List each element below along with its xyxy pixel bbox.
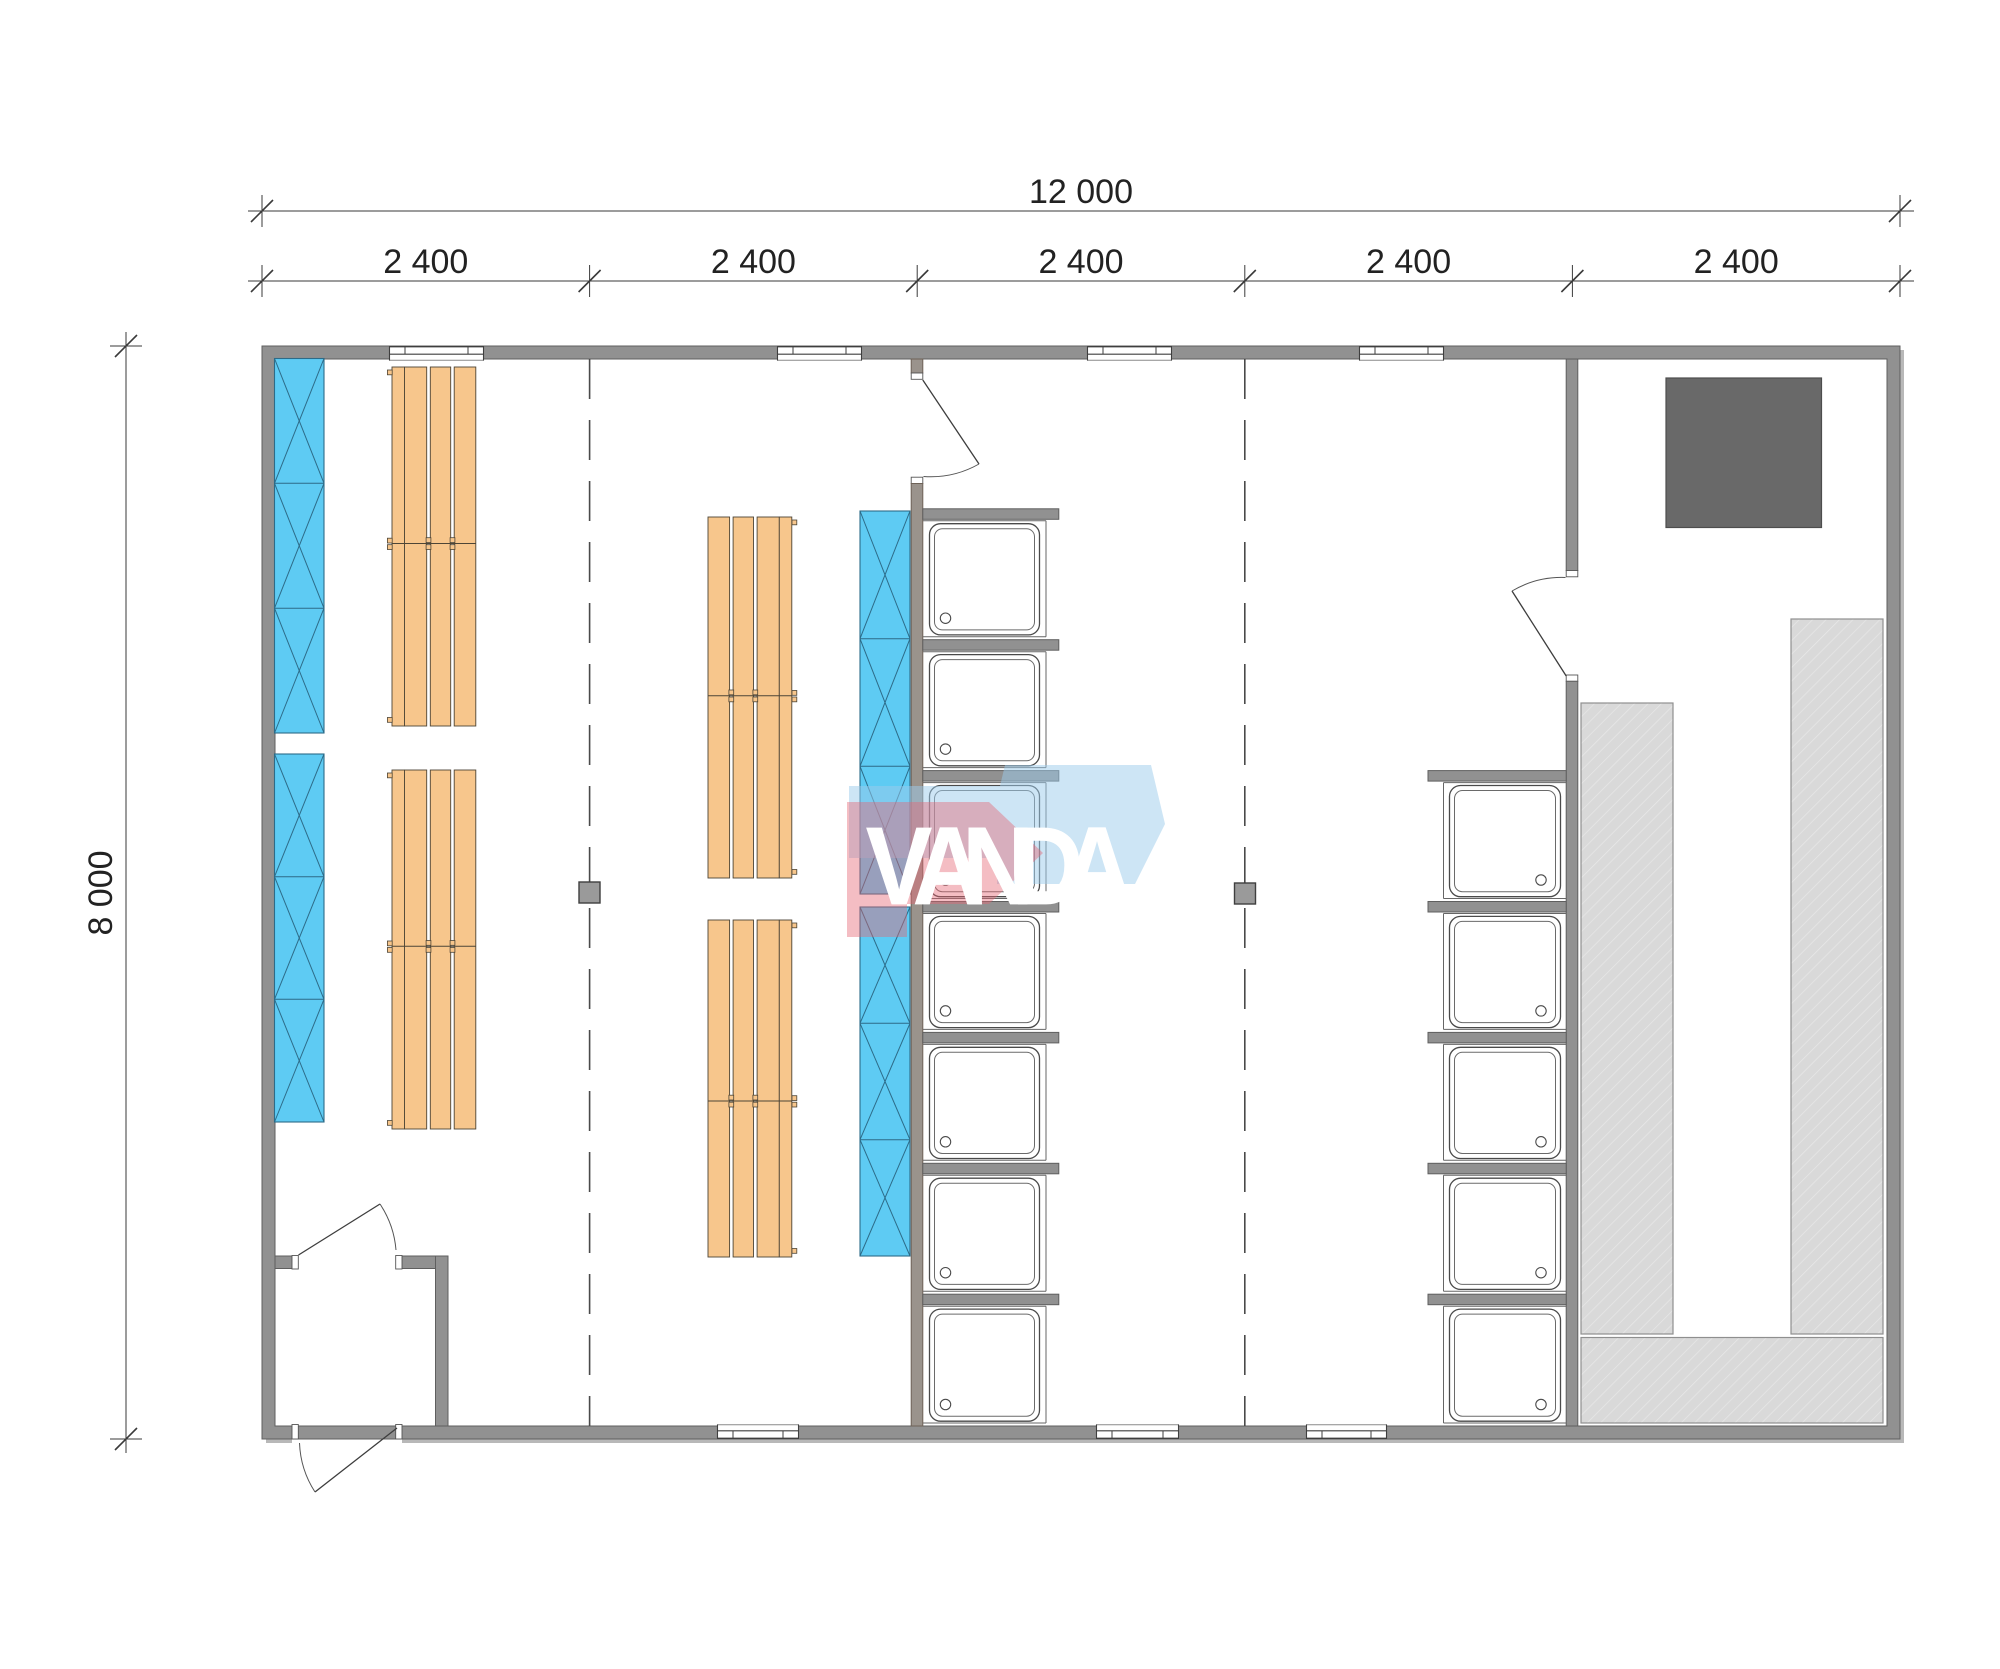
svg-text:12 000: 12 000: [1029, 173, 1133, 211]
svg-text:2 400: 2 400: [1694, 243, 1779, 281]
svg-text:8 000: 8 000: [82, 850, 120, 935]
svg-text:2 400: 2 400: [383, 243, 468, 281]
svg-text:2 400: 2 400: [1366, 243, 1451, 281]
svg-text:2 400: 2 400: [1038, 243, 1123, 281]
svg-text:A: A: [1061, 805, 1132, 928]
svg-text:2 400: 2 400: [711, 243, 796, 281]
